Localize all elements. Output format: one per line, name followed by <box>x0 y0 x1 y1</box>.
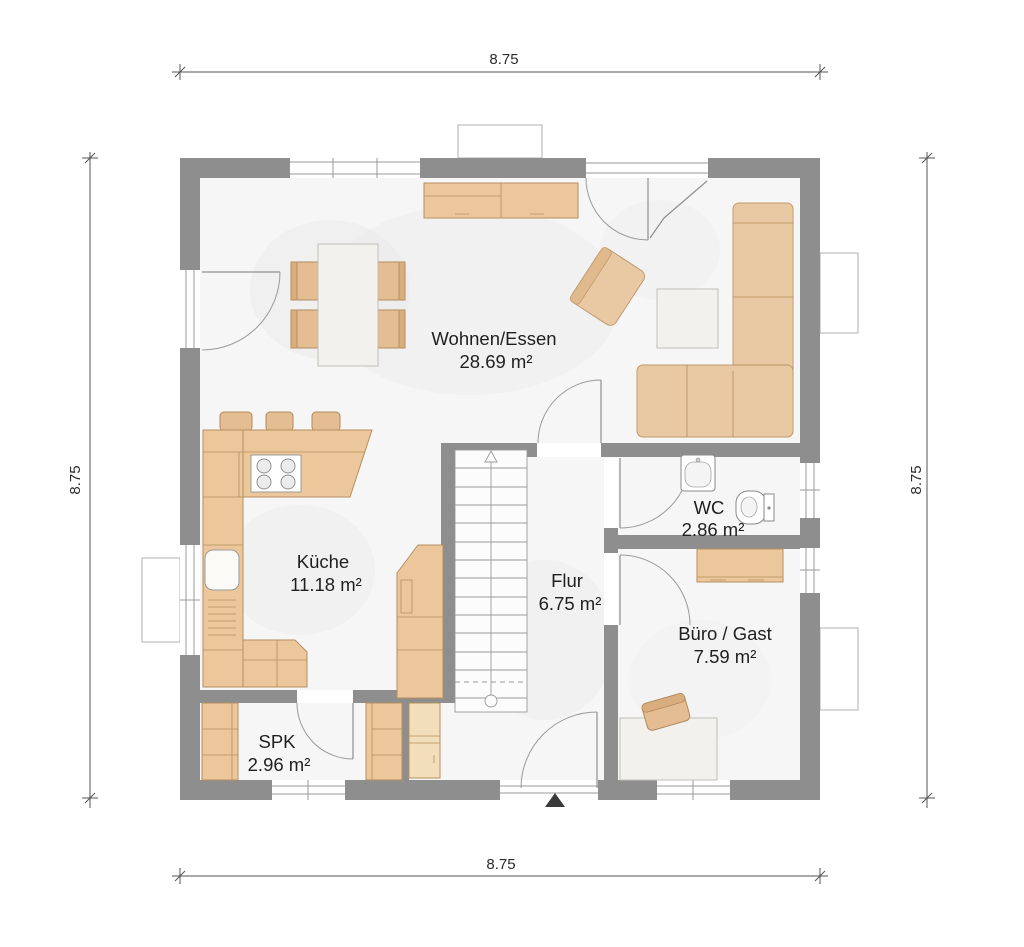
dimension-left-value: 8.75 <box>67 465 84 494</box>
room-area-wc: 2.86 m² <box>682 519 745 540</box>
dimension-top: 8.75 <box>172 51 828 80</box>
dimension-right-value: 8.75 <box>908 465 925 494</box>
room-name-buero-gast: Büro / Gast <box>678 623 772 644</box>
room-name-spk: SPK <box>258 731 296 752</box>
room-name-flur: Flur <box>551 570 583 591</box>
window-bottom-office <box>657 780 730 800</box>
porch-canopy <box>458 125 542 158</box>
bar-stools <box>220 412 340 431</box>
dimension-bottom-value: 8.75 <box>486 856 515 873</box>
dimension-left: 8.75 <box>67 152 98 808</box>
stove-icon <box>251 455 301 492</box>
office-table <box>620 718 717 780</box>
tall-cabinet <box>397 545 443 698</box>
floor-plan-page: Wohnen/Essen 28.69 m² Küche 11.18 m² Flu… <box>0 0 1024 947</box>
room-area-flur: 6.75 m² <box>539 593 602 614</box>
sideboard <box>424 183 578 218</box>
window-right-office <box>800 548 820 593</box>
coffee-table <box>657 289 718 348</box>
dimension-right: 8.75 <box>908 152 935 808</box>
wc-sink-icon <box>681 455 715 491</box>
pantry-shelf-right <box>366 703 402 780</box>
desk <box>697 549 783 582</box>
dimension-bottom: 8.75 <box>172 856 828 884</box>
room-name-wohnen-essen: Wohnen/Essen <box>431 328 556 349</box>
pantry-shelf-left <box>202 703 238 780</box>
floor-plan-canvas: Wohnen/Essen 28.69 m² Küche 11.18 m² Flu… <box>0 0 1024 947</box>
room-area-buero-gast: 7.59 m² <box>694 646 757 667</box>
hall-wardrobe <box>409 703 440 778</box>
dimension-top-value: 8.75 <box>489 51 518 68</box>
stairs <box>455 450 527 712</box>
room-name-kueche: Küche <box>297 551 349 572</box>
window-right-wc <box>800 463 820 518</box>
window-top-living <box>290 158 420 178</box>
room-area-kueche: 11.18 m² <box>290 574 362 595</box>
room-area-spk: 2.96 m² <box>248 754 311 775</box>
room-name-wc: WC <box>694 497 725 518</box>
window-left-kitchen <box>180 545 200 655</box>
room-area-wohnen-essen: 28.69 m² <box>459 351 532 372</box>
window-bottom-pantry <box>272 780 345 800</box>
